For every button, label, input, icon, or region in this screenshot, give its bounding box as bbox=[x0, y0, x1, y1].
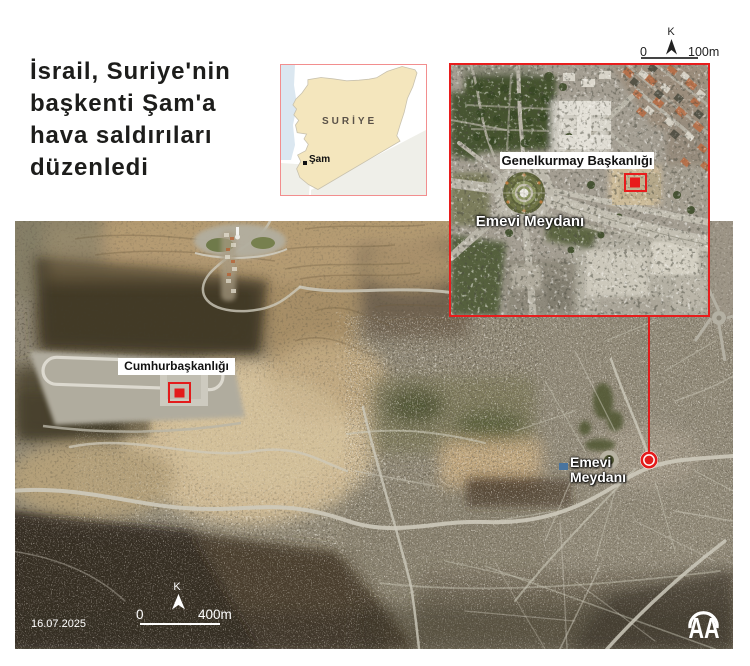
svg-text:AA: AA bbox=[689, 613, 720, 641]
